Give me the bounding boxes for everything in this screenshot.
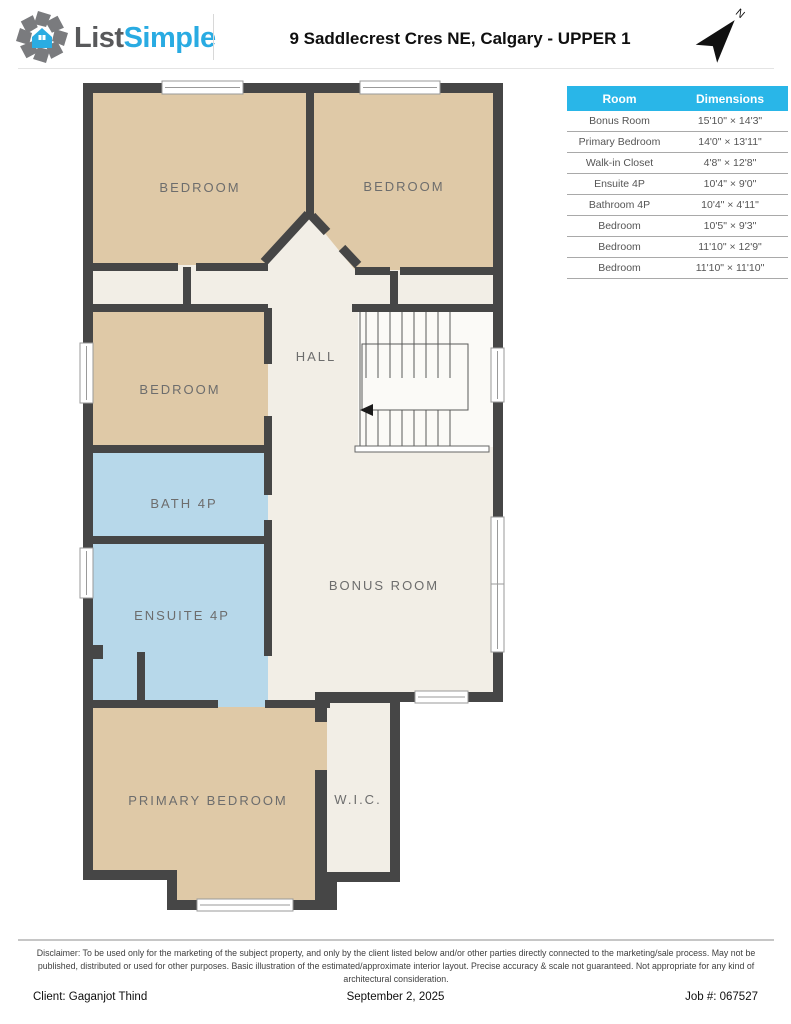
- table-header-room: Room: [567, 86, 672, 111]
- job-number: Job #: 067527: [685, 991, 758, 1003]
- cell-room: Ensuite 4P: [567, 174, 672, 195]
- window-primary-bottom: [197, 899, 293, 911]
- cell-room: Bedroom: [567, 237, 672, 258]
- label-bath-4p: BATH 4P: [150, 496, 217, 511]
- window-right-stairs: [491, 348, 504, 402]
- table-header-row: Room Dimensions: [567, 86, 788, 111]
- table-row: Ensuite 4P10'4" × 9'0": [567, 174, 788, 195]
- cell-room: Bonus Room: [567, 111, 672, 132]
- label-bedroom-top-right: BEDROOM: [363, 179, 444, 194]
- cell-dimensions: 4'8" × 12'8": [672, 153, 788, 174]
- dimensions-table: Room Dimensions Bonus Room15'10" × 14'3"…: [567, 86, 788, 279]
- window-right-bonus: [491, 517, 504, 652]
- cell-dimensions: 10'4" × 4'11": [672, 195, 788, 216]
- cell-dimensions: 11'10" × 11'10": [672, 258, 788, 279]
- room-ensuite-4p: [93, 542, 268, 707]
- label-primary-bedroom: PRIMARY BEDROOM: [128, 793, 288, 808]
- cell-room: Primary Bedroom: [567, 132, 672, 153]
- disclaimer-text: Disclaimer: To be used only for the mark…: [36, 947, 756, 986]
- cell-room: Bedroom: [567, 216, 672, 237]
- window-left-bedroom: [80, 343, 93, 403]
- table-header-dimensions: Dimensions: [672, 86, 788, 111]
- cell-dimensions: 15'10" × 14'3": [672, 111, 788, 132]
- window-top-left: [162, 81, 243, 94]
- footer-rule: [18, 939, 774, 941]
- cell-dimensions: 11'10" × 12'9": [672, 237, 788, 258]
- cell-room: Bedroom: [567, 258, 672, 279]
- cell-room: Bathroom 4P: [567, 195, 672, 216]
- table-row: Bathroom 4P10'4" × 4'11": [567, 195, 788, 216]
- label-ensuite-4p: ENSUITE 4P: [134, 608, 230, 623]
- table-row: Bedroom11'10" × 11'10": [567, 258, 788, 279]
- cell-dimensions: 10'4" × 9'0": [672, 174, 788, 195]
- window-bonus-bottom: [415, 691, 468, 703]
- table-row: Bedroom11'10" × 12'9": [567, 237, 788, 258]
- window-left-ensuite: [80, 548, 93, 598]
- stair-rail: [355, 446, 489, 452]
- label-bedroom-top-left: BEDROOM: [159, 180, 240, 195]
- room-bedroom-top-left: [93, 93, 310, 265]
- room-bedroom-mid: [93, 308, 268, 449]
- cell-dimensions: 10'5" × 9'3": [672, 216, 788, 237]
- window-top-right: [360, 81, 440, 94]
- label-bonus-room: BONUS ROOM: [329, 578, 439, 593]
- label-wic: W.I.C.: [334, 792, 381, 807]
- label-bedroom-mid: BEDROOM: [139, 382, 220, 397]
- cell-dimensions: 14'0" × 13'11": [672, 132, 788, 153]
- cell-room: Walk-in Closet: [567, 153, 672, 174]
- table-row: Walk-in Closet4'8" × 12'8": [567, 153, 788, 174]
- table-row: Bonus Room15'10" × 14'3": [567, 111, 788, 132]
- label-hall: HALL: [296, 349, 337, 364]
- table-row: Bedroom10'5" × 9'3": [567, 216, 788, 237]
- document-date: September 2, 2025: [0, 991, 791, 1003]
- table-row: Primary Bedroom14'0" × 13'11": [567, 132, 788, 153]
